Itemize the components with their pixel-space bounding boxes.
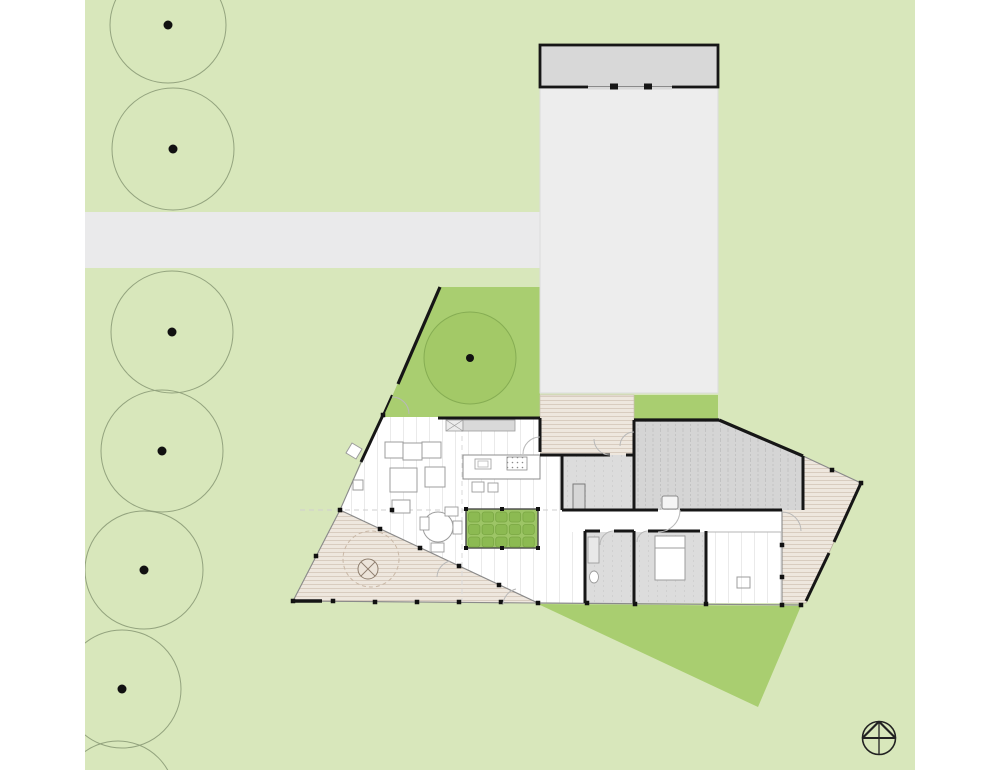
fireplace-box: [573, 484, 585, 510]
kitchen-stove: [507, 457, 527, 470]
entry-walkway: [540, 395, 634, 457]
shower-tray: [588, 537, 599, 563]
site-plan-canvas: [0, 0, 1000, 772]
side-table: [353, 480, 363, 490]
toilet: [590, 571, 599, 583]
dining-chair: [445, 507, 458, 516]
dining-chair: [420, 517, 429, 530]
armchair: [392, 500, 410, 513]
barn-head-tick: [644, 84, 652, 90]
sofa-seat: [385, 442, 403, 458]
courtyard-tree-dot: [466, 354, 474, 362]
tree-trunk-dot: [164, 21, 173, 30]
sofa-seat: [403, 443, 422, 460]
kitchen-island: [463, 455, 540, 479]
lounge-chair: [425, 467, 445, 487]
north-compass-icon: [863, 722, 896, 755]
bed: [655, 536, 685, 580]
hallway-floor: [562, 510, 782, 532]
kitchen-sink: [475, 459, 491, 469]
tree-trunk-dot: [169, 145, 178, 154]
barn-head-tick: [610, 84, 618, 90]
tree-trunk-dot: [140, 566, 149, 575]
barn-head: [540, 45, 718, 87]
hall-basin: [662, 496, 678, 509]
bar-stool: [472, 482, 484, 492]
lawn-strip: [634, 395, 718, 420]
barn-body: [540, 88, 718, 393]
study-floor: [706, 532, 782, 603]
tree-trunk-dot: [118, 685, 127, 694]
driveway-road: [85, 212, 540, 268]
tree-trunk-dot: [168, 328, 177, 337]
bar-stool: [488, 483, 498, 492]
sofa-seat: [422, 442, 441, 458]
dining-chair: [431, 543, 444, 552]
kitchen-wall-cabinet: [463, 420, 515, 431]
dining-chair: [453, 521, 462, 534]
coffee-table: [390, 468, 417, 492]
site-plan: [0, 0, 1000, 772]
tree-trunk-dot: [158, 447, 167, 456]
indoor-planter-cells: [469, 512, 535, 547]
